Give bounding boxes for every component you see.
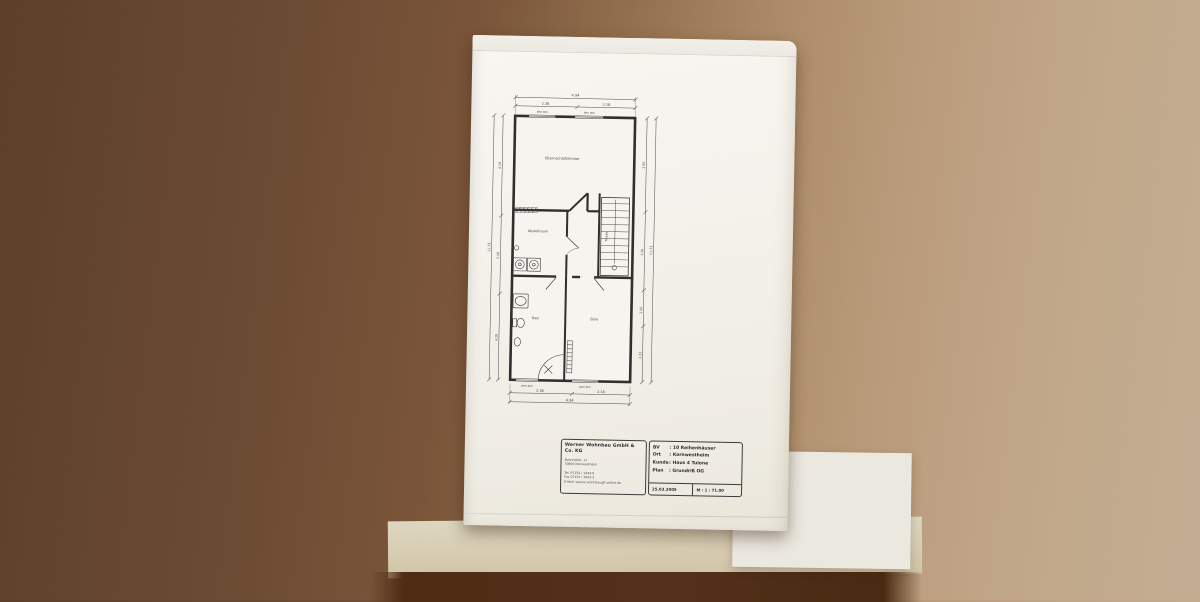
dim-right-seg-1: 3.90 xyxy=(642,162,646,169)
dim-left-seg-3: 4.28 xyxy=(494,334,498,341)
project-date: 25.03.2005 xyxy=(649,486,693,492)
project-scale: M : 1 : 71.00 xyxy=(692,484,741,496)
floorplan-paper-sheet: 4.94 2.38 2.18 2.38 2.18 4.94 11.73 4.19… xyxy=(463,35,796,531)
window-bottom-left xyxy=(516,378,538,382)
dim-width-total-top: 4.94 xyxy=(572,93,581,97)
dim-height-total-right: 11.73 xyxy=(649,246,653,256)
window-label-bottom-right: BRH 800 xyxy=(580,385,591,389)
floor-strip xyxy=(370,572,922,602)
room-label-bath: Bad xyxy=(532,316,539,320)
dim-width-left-top: 2.38 xyxy=(542,102,550,106)
company-email: E-Mail: werner.wohnbau@t-online.de xyxy=(564,480,642,486)
titleblock: Werner Wohnbau GmbH & Co. KG Bahnhofstr.… xyxy=(560,439,743,497)
dim-left-seg-1: 4.19 xyxy=(498,162,502,169)
dim-right-seg-2: 3.26 xyxy=(640,249,644,256)
dim-width-left-bottom: 2.38 xyxy=(536,389,544,393)
project-value: Grundriß OG xyxy=(672,468,738,477)
window-top-left xyxy=(529,114,555,118)
room-label-bedroom: Elternschlafzimmer xyxy=(545,156,580,161)
dimension-top xyxy=(513,95,637,116)
dim-width-right-top: 2.18 xyxy=(603,103,611,107)
room-label-storage: Abstellraum xyxy=(528,229,549,233)
paper-fold-bottom xyxy=(464,513,788,518)
titleblock-company: Werner Wohnbau GmbH & Co. KG Bahnhofstr.… xyxy=(560,439,647,496)
project-row-plan: Plan : Grundriß OG xyxy=(652,468,738,478)
project-label: Plan xyxy=(652,468,667,476)
titleblock-project: BV : 10 Reihenhäuser Ort : Kornwestheim … xyxy=(648,440,743,497)
window-bottom-right xyxy=(572,379,598,383)
dim-width-right-bottom: 2.18 xyxy=(597,390,605,394)
room-label-stairs: Treppe xyxy=(604,231,608,242)
outer-walls xyxy=(510,116,635,382)
room-label-office: Büro xyxy=(590,317,598,321)
dim-right-seg-4: 2.33 xyxy=(638,352,642,359)
window-top-right xyxy=(575,115,603,119)
dim-left-seg-2: 3.26 xyxy=(496,252,500,259)
company-name: Werner Wohnbau GmbH & Co. KG xyxy=(565,443,643,455)
window-label-top-right: BRH 800 xyxy=(584,111,595,115)
floorplan-drawing: 4.94 2.38 2.18 2.38 2.18 4.94 11.73 4.19… xyxy=(479,89,695,423)
dim-height-total-left: 11.73 xyxy=(487,243,491,253)
dim-width-total-bottom: 4.94 xyxy=(566,398,575,402)
dim-right-seg-3: 1.50 xyxy=(639,307,643,314)
window-label-bottom-left: BRH 800 xyxy=(522,384,533,388)
window-label-top-left: BRH 800 xyxy=(537,110,548,114)
